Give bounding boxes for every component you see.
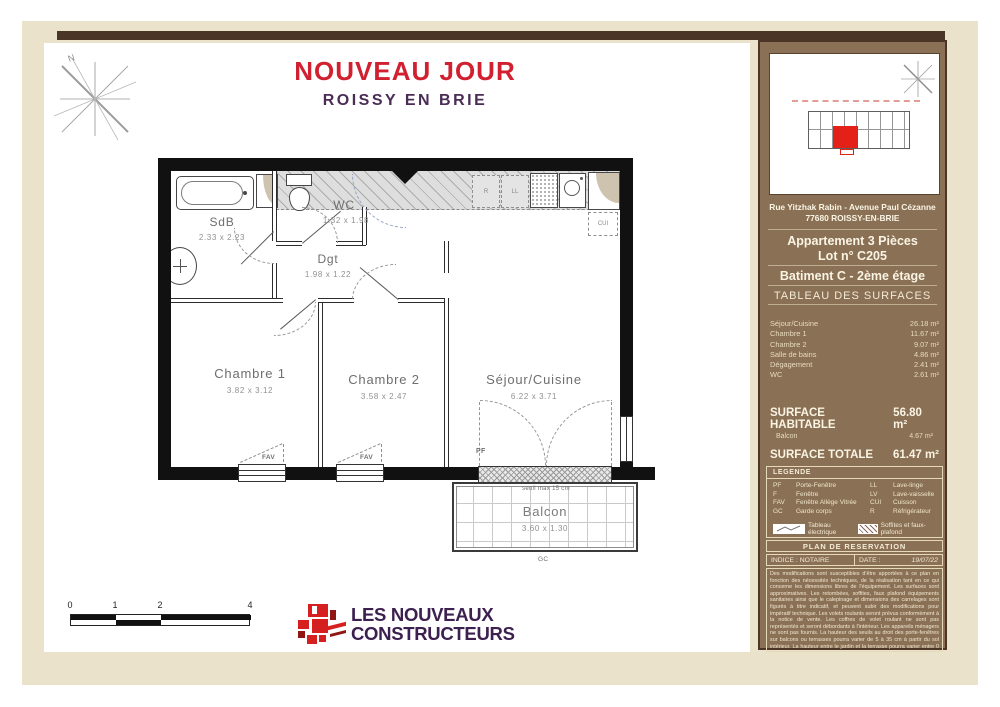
surface-totale-value: 61.47 m² bbox=[893, 449, 939, 461]
balcon-label: Balcon bbox=[776, 433, 797, 440]
washer-symbol: LL bbox=[501, 175, 529, 208]
divider bbox=[768, 285, 937, 286]
legend-abbr: FAV bbox=[773, 499, 796, 508]
partition-wall bbox=[276, 241, 302, 246]
legend-text: Réfrigérateur bbox=[893, 508, 936, 517]
room-dims-chambre1: 3.82 x 3.12 bbox=[190, 386, 310, 395]
window-fav-2-pane bbox=[337, 475, 383, 476]
balcon-row: Balcon 4.67 m² bbox=[776, 433, 933, 440]
electrical-panel-icon bbox=[773, 524, 805, 534]
room-label-chambre1: Chambre 1 bbox=[190, 366, 310, 381]
soffit-swatch-icon bbox=[858, 524, 878, 534]
disclaimer-text: Des modifications sont susceptibles d'êt… bbox=[766, 568, 943, 652]
window-fav-2 bbox=[336, 464, 384, 482]
legend-grid: PF Porte-Fenêtre LL Lave-linge F Fenêtre… bbox=[767, 479, 942, 516]
balcon-value: 4.67 m² bbox=[909, 433, 933, 440]
room-label-dgt: Dgt bbox=[298, 252, 358, 266]
fav-label-2: FAV bbox=[360, 454, 373, 461]
electrical-panel-label: Tableau électrique bbox=[808, 522, 854, 536]
room-label-balcon: Balcon bbox=[485, 504, 605, 519]
threshold-note: seuil max 15 cm bbox=[498, 486, 594, 492]
fav-label-1: FAV bbox=[262, 454, 275, 461]
surface-value: 4.86 m² bbox=[914, 350, 939, 360]
surface-row: Dégagement 2.41 m² bbox=[770, 360, 939, 370]
window-fav-2-pane bbox=[337, 470, 383, 471]
lnc-logo-icon bbox=[298, 604, 348, 648]
legend-title: LEGENDE bbox=[767, 467, 942, 479]
surface-value: 2.61 m² bbox=[914, 370, 939, 380]
sink-tap bbox=[580, 177, 583, 180]
refrigerator-label: R bbox=[484, 189, 488, 195]
date-label: DATE : bbox=[855, 555, 880, 565]
washer-label: LL bbox=[512, 189, 519, 195]
surface-table: Séjour/Cuisine 26.18 m² Chambre 1 11.67 … bbox=[770, 319, 939, 381]
room-dims-balcon: 3.60 x 1.30 bbox=[485, 524, 605, 533]
window-fav-1 bbox=[238, 464, 286, 482]
legend-abbr: F bbox=[773, 491, 796, 500]
room-dims-wc: 1.32 x 1.98 bbox=[314, 216, 378, 225]
scale-bar bbox=[70, 614, 250, 626]
cooktop-zone: CUI bbox=[588, 212, 618, 236]
legend-text: Porte-Fenêtre bbox=[796, 482, 870, 491]
surface-label: Chambre 1 bbox=[770, 329, 807, 339]
lot-number: Lot n° C205 bbox=[760, 249, 945, 263]
surface-label: Séjour/Cuisine bbox=[770, 319, 818, 329]
legend-abbr: PF bbox=[773, 482, 796, 491]
logo-line-2: CONSTRUCTEURS bbox=[351, 624, 515, 643]
legend-abbr: CUI bbox=[870, 499, 893, 508]
legend-text: Fenêtre Allège Vitrée bbox=[796, 499, 870, 508]
divider bbox=[768, 265, 937, 266]
partition-wall bbox=[171, 298, 283, 303]
surface-habitable-row: SURFACE HABITABLE 56.80 m² bbox=[770, 407, 939, 431]
legend-box: LEGENDE PF Porte-Fenêtre LL Lave-linge F… bbox=[766, 466, 943, 538]
entrance-door-marker bbox=[392, 171, 418, 184]
surface-value: 11.67 m² bbox=[910, 329, 939, 339]
page-background bbox=[44, 43, 750, 652]
building-floor: Batiment C - 2ème étage bbox=[760, 269, 945, 283]
refrigerator-symbol: R bbox=[472, 175, 500, 208]
pf-door-leaf bbox=[479, 402, 480, 466]
toilet-tank bbox=[286, 174, 312, 186]
top-rule bbox=[57, 31, 945, 40]
keyplan-compass-icon bbox=[900, 60, 936, 98]
legend-text: Lave-linge bbox=[893, 482, 936, 491]
fav-swing-line bbox=[381, 444, 382, 462]
room-dims-dgt: 1.98 x 1.22 bbox=[296, 270, 360, 279]
surface-table-title: TABLEAU DES SURFACES bbox=[760, 290, 945, 302]
bathtub-drain bbox=[243, 191, 247, 195]
surface-row: Chambre 1 11.67 m² bbox=[770, 329, 939, 339]
surface-value: 9.07 m² bbox=[914, 340, 939, 350]
exterior-wall-left bbox=[158, 158, 171, 480]
surface-row: WC 2.61 m² bbox=[770, 370, 939, 380]
partition-wall bbox=[318, 300, 323, 467]
surface-value: 26.18 m² bbox=[910, 319, 939, 329]
legend-abbr: LV bbox=[870, 491, 893, 500]
apartment-type: Appartement 3 Pièces bbox=[760, 234, 945, 248]
wall-stub bbox=[633, 467, 655, 480]
room-label-sdb: SdB bbox=[182, 215, 262, 229]
building-footprint bbox=[808, 111, 910, 149]
surface-row: Séjour/Cuisine 26.18 m² bbox=[770, 319, 939, 329]
project-title: NOUVEAU JOUR bbox=[170, 56, 640, 87]
surface-habitable-value: 56.80 m² bbox=[893, 407, 939, 431]
room-label-sejour: Séjour/Cuisine bbox=[454, 372, 614, 387]
pf-door-leaf bbox=[611, 402, 612, 466]
legend-abbr: GC bbox=[773, 508, 796, 517]
room-label-wc: WC bbox=[314, 198, 374, 212]
cooktop-label: CUI bbox=[598, 221, 608, 227]
surface-label: Chambre 2 bbox=[770, 340, 807, 350]
surface-totale-row: SURFACE TOTALE 61.47 m² bbox=[770, 449, 939, 461]
partition-wall bbox=[444, 241, 449, 273]
surface-label: WC bbox=[770, 370, 782, 380]
indice-date-row: INDICE : NOTAIRE DATE : 19/07/22 bbox=[766, 554, 943, 566]
room-dims-sdb: 2.33 x 2.23 bbox=[182, 233, 262, 242]
fav-swing-line bbox=[283, 444, 284, 462]
pf-label: PF bbox=[476, 448, 486, 455]
date-value: 19/07/22 bbox=[880, 555, 942, 565]
room-dims-sejour: 6.22 x 3.71 bbox=[454, 392, 614, 401]
room-label-chambre2: Chambre 2 bbox=[324, 372, 444, 387]
scale-tick: 0 bbox=[63, 600, 77, 610]
legend-symbols-row: Tableau électrique Soffites et faux-plaf… bbox=[773, 523, 938, 534]
surface-row: Salle de bains 4.86 m² bbox=[770, 350, 939, 360]
soffit-label: Soffites et faux-plafond bbox=[881, 522, 938, 536]
project-city: ROISSY EN BRIE bbox=[170, 92, 640, 110]
legend-abbr: LL bbox=[870, 482, 893, 491]
logo-wordmark: LES NOUVEAUX CONSTRUCTEURS bbox=[351, 605, 515, 643]
window-fav-1-pane bbox=[239, 475, 285, 476]
highlighted-unit bbox=[833, 126, 858, 148]
room-dims-chambre2: 3.58 x 2.47 bbox=[324, 392, 444, 401]
surface-totale-label: SURFACE TOTALE bbox=[770, 449, 873, 461]
surface-row: Chambre 2 9.07 m² bbox=[770, 340, 939, 350]
surface-label: Dégagement bbox=[770, 360, 812, 370]
struck-building-name bbox=[792, 100, 920, 102]
dishwasher-symbol bbox=[530, 173, 558, 208]
window-right-pane bbox=[626, 417, 627, 461]
legend-text: Garde corps bbox=[796, 508, 870, 517]
scale-tick: 2 bbox=[153, 600, 167, 610]
sink-bowl bbox=[564, 180, 580, 196]
exterior-wall-top bbox=[158, 158, 633, 171]
address-line-1: Rue Yitzhak Rabin - Avenue Paul Cézanne bbox=[760, 202, 945, 212]
scale-tick: 1 bbox=[108, 600, 122, 610]
gc-label: GC bbox=[538, 556, 548, 563]
partition-wall bbox=[318, 298, 354, 303]
partition-wall bbox=[272, 263, 277, 303]
logo-line-1: LES NOUVEAUX bbox=[351, 605, 515, 624]
partition-wall bbox=[444, 298, 449, 467]
bathtub-inner bbox=[181, 181, 243, 205]
partition-wall bbox=[398, 298, 448, 303]
scale-tick: 4 bbox=[243, 600, 257, 610]
divider bbox=[768, 229, 937, 230]
surface-value: 2.41 m² bbox=[914, 360, 939, 370]
partition-wall bbox=[362, 207, 367, 245]
info-panel: Rue Yitzhak Rabin - Avenue Paul Cézanne … bbox=[758, 40, 947, 650]
surface-label: Salle de bains bbox=[770, 350, 816, 360]
balcony-threshold bbox=[478, 466, 612, 483]
unit-balcony-outline bbox=[840, 149, 854, 155]
indice-cell: INDICE : NOTAIRE bbox=[767, 555, 855, 565]
legend-abbr: R bbox=[870, 508, 893, 517]
legend-text: Lave-vaisselle bbox=[893, 491, 936, 500]
compass-icon bbox=[52, 56, 138, 142]
legend-text: Fenêtre bbox=[796, 491, 870, 500]
plan-sheet: N NOUVEAU JOUR ROISSY EN BRIE R LL CUI bbox=[0, 0, 1000, 707]
legend-text: Cuisson bbox=[893, 499, 936, 508]
address-line-2: 77680 ROISSY-EN-BRIE bbox=[760, 213, 945, 223]
surface-habitable-label: SURFACE HABITABLE bbox=[770, 407, 893, 431]
reservation-title: PLAN DE RESERVATION bbox=[766, 540, 943, 552]
keyplan-box bbox=[769, 53, 940, 195]
divider bbox=[768, 304, 937, 305]
window-fav-1-pane bbox=[239, 470, 285, 471]
